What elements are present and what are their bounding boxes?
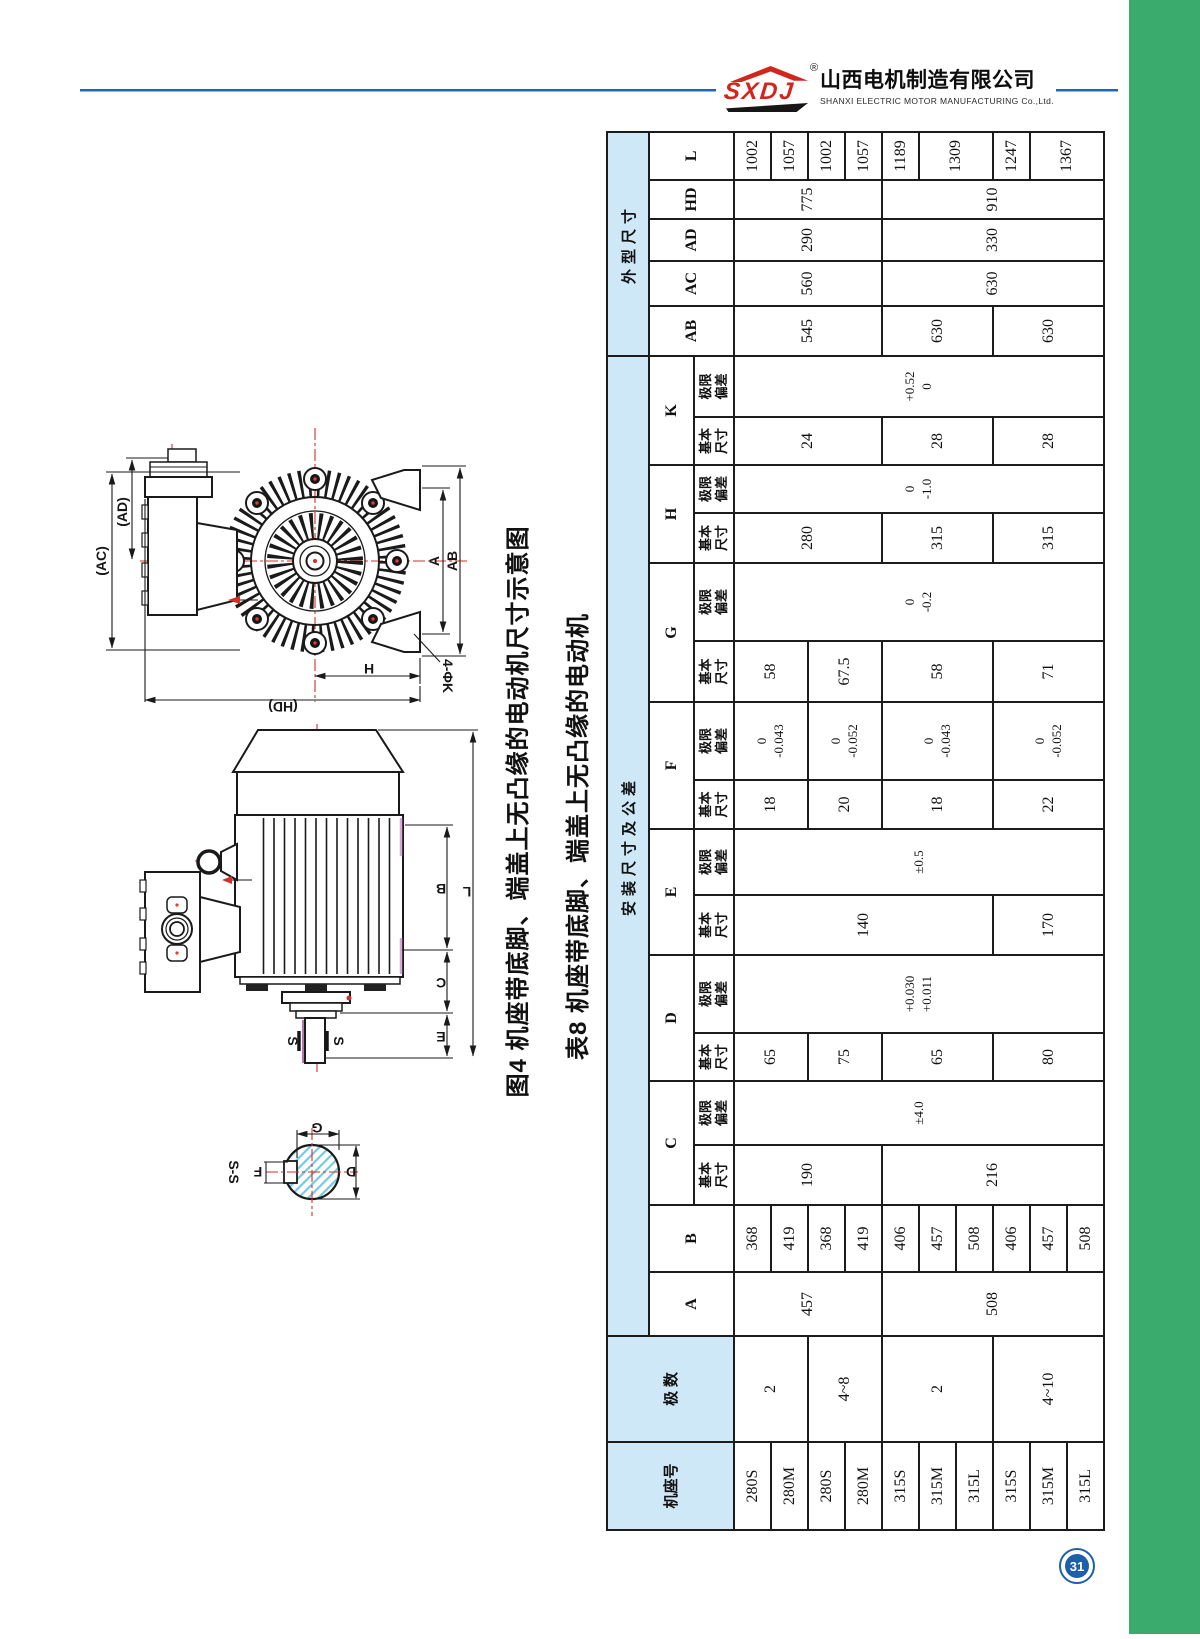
subheader-basic: 基本 尺寸 (694, 513, 734, 563)
subheader-limit: 极限 偏差 (694, 955, 734, 1033)
cell-E-limit: ±0.5 (734, 829, 1104, 895)
cell-B: 508 (956, 1205, 993, 1272)
cell-frame: 315L (956, 1442, 993, 1530)
cell-G-basic: 58 (882, 641, 993, 702)
shaft-section-drawing: G F D S-S (226, 1120, 360, 1216)
svg-text:B: B (436, 881, 446, 897)
svg-text:D: D (346, 1164, 356, 1180)
svg-text:S: S (331, 1036, 347, 1045)
col-header-K: K (649, 356, 694, 465)
page-number: 31 (1065, 1554, 1089, 1578)
svg-text:G: G (311, 1120, 322, 1136)
cell-H-limit: 0 -1.0 (734, 465, 1104, 513)
cell-B: 368 (734, 1205, 771, 1272)
cell-L: 1002 (734, 132, 771, 180)
svg-text:(AD): (AD) (114, 497, 130, 527)
subheader-basic: 基本 尺寸 (694, 780, 734, 829)
cell-L: 1057 (771, 132, 808, 180)
cell-AB: 630 (993, 306, 1104, 356)
svg-text:F: F (253, 1164, 262, 1180)
cell-G-basic: 58 (734, 641, 808, 702)
cell-F-limit: 0 -0.043 (882, 702, 993, 780)
cell-frame: 315S (993, 1442, 1030, 1530)
cell-frame: 280M (845, 1442, 882, 1530)
subheader-limit: 极限 偏差 (694, 465, 734, 513)
cell-B: 419 (771, 1205, 808, 1272)
cell-C-basic: 216 (882, 1145, 1104, 1205)
cell-L: 1002 (808, 132, 845, 180)
table-row: 280S 2 457 368 190 ±4.0 65 +0.030 +0.011… (734, 132, 771, 1530)
col-header-AC: AC (649, 261, 734, 306)
group-header-install: 安装尺寸及公差 (607, 356, 649, 1336)
svg-text:S-S: S-S (226, 1160, 242, 1183)
cell-L: 1189 (882, 132, 919, 180)
col-header-poles: 极 数 (607, 1336, 734, 1442)
cell-frame: 280S (808, 1442, 845, 1530)
cell-K-basic: 28 (882, 417, 993, 465)
cell-F-limit: 0 -0.052 (993, 702, 1104, 780)
subheader-limit: 极限 偏差 (694, 563, 734, 641)
svg-text:H: H (364, 661, 374, 677)
col-header-HD: HD (649, 180, 734, 219)
cell-F-limit: 0 -0.052 (808, 702, 882, 780)
cell-frame: 315L (1067, 1442, 1104, 1530)
cell-F-basic: 18 (734, 780, 808, 829)
motor-end-view-drawing: (AC) (AD) A AB H (HD) 4-ΦK (93, 428, 470, 715)
cell-poles: 4~10 (993, 1336, 1104, 1442)
svg-text:L: L (462, 884, 471, 900)
cell-AB: 545 (734, 306, 882, 356)
cell-F-basic: 18 (882, 780, 993, 829)
col-header-AD: AD (649, 219, 734, 261)
cell-G-limit: 0 -0.2 (734, 563, 1104, 641)
cell-B: 457 (919, 1205, 956, 1272)
subheader-limit: 极限 偏差 (694, 829, 734, 895)
cell-B: 508 (1067, 1205, 1104, 1272)
cell-F-basic: 20 (808, 780, 882, 829)
cell-B: 406 (993, 1205, 1030, 1272)
cell-H-basic: 315 (993, 513, 1104, 563)
svg-text:(HD): (HD) (268, 699, 298, 715)
cell-D-basic: 80 (993, 1033, 1104, 1081)
table-rotation-wrapper: 机座号 极 数 安装尺寸及公差 外型尺寸 A B C D E F G H K A… (606, 133, 1105, 1531)
cell-B: 406 (882, 1205, 919, 1272)
svg-text:(AC): (AC) (93, 546, 109, 576)
cell-frame: 280S (734, 1442, 771, 1530)
cell-AD: 330 (882, 219, 1104, 261)
cell-frame: 315S (882, 1442, 919, 1530)
cell-F-basic: 22 (993, 780, 1104, 829)
cell-B: 419 (845, 1205, 882, 1272)
col-header-F: F (649, 702, 694, 829)
cell-K-basic: 28 (993, 417, 1104, 465)
col-header-frame: 机座号 (607, 1442, 734, 1530)
cell-AB: 630 (882, 306, 993, 356)
cell-E-basic: 170 (993, 895, 1104, 955)
col-header-A: A (649, 1272, 734, 1336)
cell-poles: 2 (882, 1336, 993, 1442)
svg-text:A: A (426, 556, 442, 566)
cell-K-basic: 24 (734, 417, 882, 465)
cell-AD: 290 (734, 219, 882, 261)
cell-C-basic: 190 (734, 1145, 882, 1205)
motor-side-view-drawing: S S B C E L (140, 724, 478, 1074)
cell-B: 368 (808, 1205, 845, 1272)
cell-G-basic: 67.5 (808, 641, 882, 702)
svg-text:4-ΦK: 4-ΦK (440, 659, 456, 693)
cell-L: 1367 (1030, 132, 1104, 180)
cell-D-basic: 65 (882, 1033, 993, 1081)
col-header-H: H (649, 465, 694, 563)
cell-AC: 560 (734, 261, 882, 306)
subheader-limit: 极限 偏差 (694, 702, 734, 780)
subheader-basic: 基本 尺寸 (694, 641, 734, 702)
cell-E-basic: 140 (734, 895, 993, 955)
svg-text:E: E (436, 1029, 445, 1045)
group-header-outline: 外型尺寸 (607, 132, 649, 356)
cell-A: 457 (734, 1272, 882, 1336)
dimensions-table: 机座号 极 数 安装尺寸及公差 外型尺寸 A B C D E F G H K A… (606, 131, 1105, 1531)
cell-G-basic: 71 (993, 641, 1104, 702)
cell-F-limit: 0 -0.043 (734, 702, 808, 780)
col-header-G: G (649, 563, 694, 702)
page-number-badge: 31 (1059, 1548, 1095, 1584)
figure-caption: 图4 机座带底脚、端盖上无凸缘的电动机尺寸示意图 (500, 555, 530, 1068)
subheader-limit: 极限 偏差 (694, 356, 734, 417)
cell-frame: 280M (771, 1442, 808, 1530)
subheader-basic: 基本 尺寸 (694, 895, 734, 955)
subheader-basic: 基本 尺寸 (694, 417, 734, 465)
col-header-D: D (649, 955, 694, 1081)
cell-AC: 630 (882, 261, 1104, 306)
cell-D-basic: 65 (734, 1033, 808, 1081)
subheader-basic: 基本 尺寸 (694, 1033, 734, 1081)
cell-HD: 775 (734, 180, 882, 219)
cell-frame: 315M (919, 1442, 956, 1530)
col-header-AB: AB (649, 306, 734, 356)
svg-text:S: S (285, 1036, 301, 1045)
table-title: 表8 机座带底脚、端盖上无凸缘的电动机 (560, 648, 590, 1025)
svg-text:AB: AB (444, 551, 460, 571)
cell-poles: 2 (734, 1336, 808, 1442)
cell-L: 1309 (919, 132, 993, 180)
cell-poles: 4~8 (808, 1336, 882, 1442)
cell-D-basic: 75 (808, 1033, 882, 1081)
cell-HD: 910 (882, 180, 1104, 219)
subheader-basic: 基本 尺寸 (694, 1145, 734, 1205)
cell-L: 1247 (993, 132, 1030, 180)
cell-C-limit: ±4.0 (734, 1081, 1104, 1145)
cell-L: 1057 (845, 132, 882, 180)
col-header-B: B (649, 1205, 734, 1272)
col-header-L: L (649, 132, 734, 180)
cell-H-basic: 315 (882, 513, 993, 563)
col-header-C: C (649, 1081, 694, 1205)
cell-A: 508 (882, 1272, 1104, 1336)
cell-B: 457 (1030, 1205, 1067, 1272)
col-header-E: E (649, 829, 694, 955)
subheader-limit: 极限 偏差 (694, 1081, 734, 1145)
cell-D-limit: +0.030 +0.011 (734, 955, 1104, 1033)
cell-K-limit: +0.52 0 (734, 356, 1104, 417)
cell-frame: 315M (1030, 1442, 1067, 1530)
cell-H-basic: 280 (734, 513, 882, 563)
svg-text:C: C (436, 975, 446, 991)
